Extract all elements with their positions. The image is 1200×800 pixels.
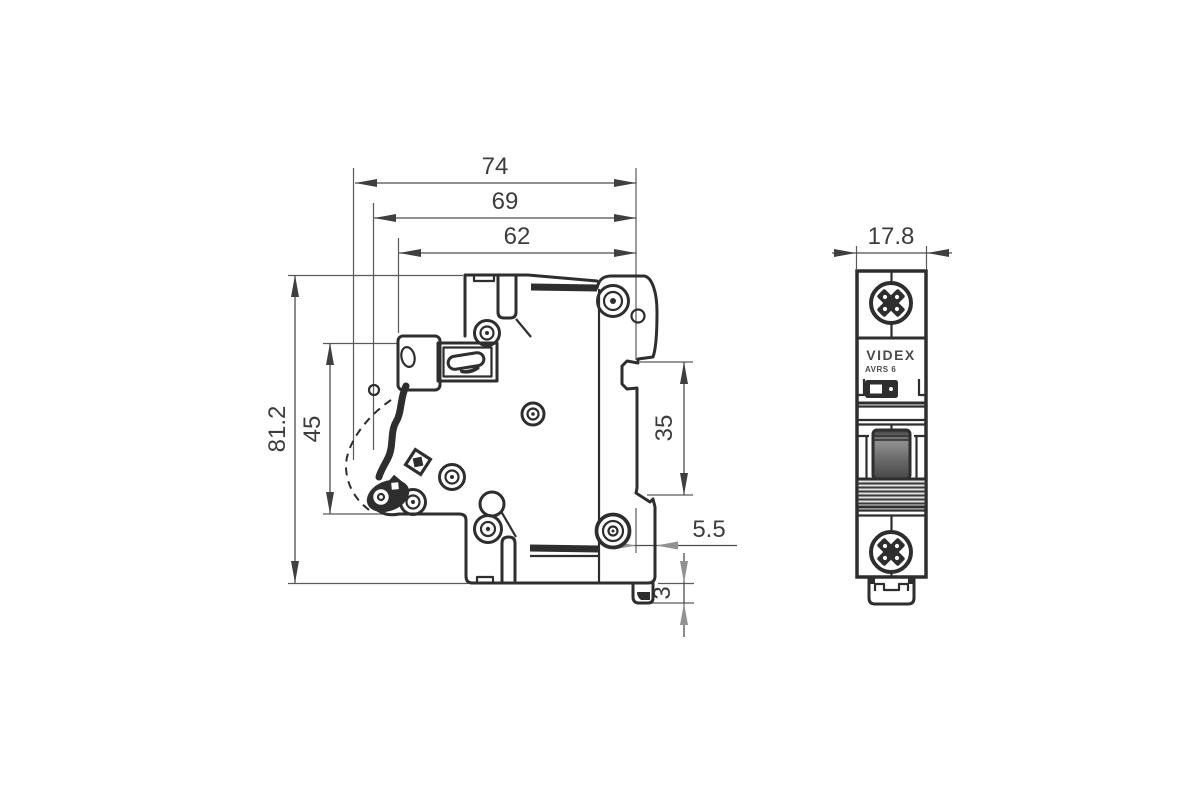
dim-body-width: 62 [399, 223, 636, 257]
dim-label-5-5: 5.5 [692, 516, 725, 543]
dim-front-height: 45 [299, 343, 334, 514]
dim-mid-width: 69 [374, 188, 636, 222]
dim-label-69: 69 [492, 188, 519, 215]
vent-ribs [859, 479, 926, 507]
dim-front-width: 17.8 [832, 223, 952, 269]
brand-logo: VIDEX [866, 347, 916, 363]
dim-din-rail-height: 35 [651, 362, 688, 495]
terminal-screw-bottom-icon [870, 531, 912, 573]
dim-label-35: 35 [651, 415, 678, 442]
rivet-screws [401, 286, 645, 548]
extension-lines [288, 168, 694, 603]
dim-overall-width: 74 [355, 153, 636, 187]
dim-label-74: 74 [482, 153, 509, 180]
dim-label-62: 62 [504, 223, 531, 250]
toggle-side-knob [447, 352, 486, 377]
toggle-switch[interactable] [873, 430, 910, 479]
technical-drawing-circuit-breaker: 74 69 62 81.2 45 [0, 0, 1200, 800]
din-clip-foot [869, 577, 914, 604]
dim-label-81-2: 81.2 [264, 406, 291, 453]
breaker-front-body: VIDEX AVRS 6 [857, 271, 926, 604]
dim-overall-height: 81.2 [264, 275, 299, 583]
side-view: 74 69 62 81.2 45 [264, 153, 737, 637]
dim-label-17-8: 17.8 [868, 223, 915, 250]
breaker-side-body [346, 275, 657, 603]
dim-label-45: 45 [299, 416, 326, 443]
terminal-screw-top-icon [870, 282, 912, 324]
model-label: AVRS 6 [865, 365, 896, 374]
front-view: 17.8 VIDEX AVRS 6 [832, 223, 952, 604]
